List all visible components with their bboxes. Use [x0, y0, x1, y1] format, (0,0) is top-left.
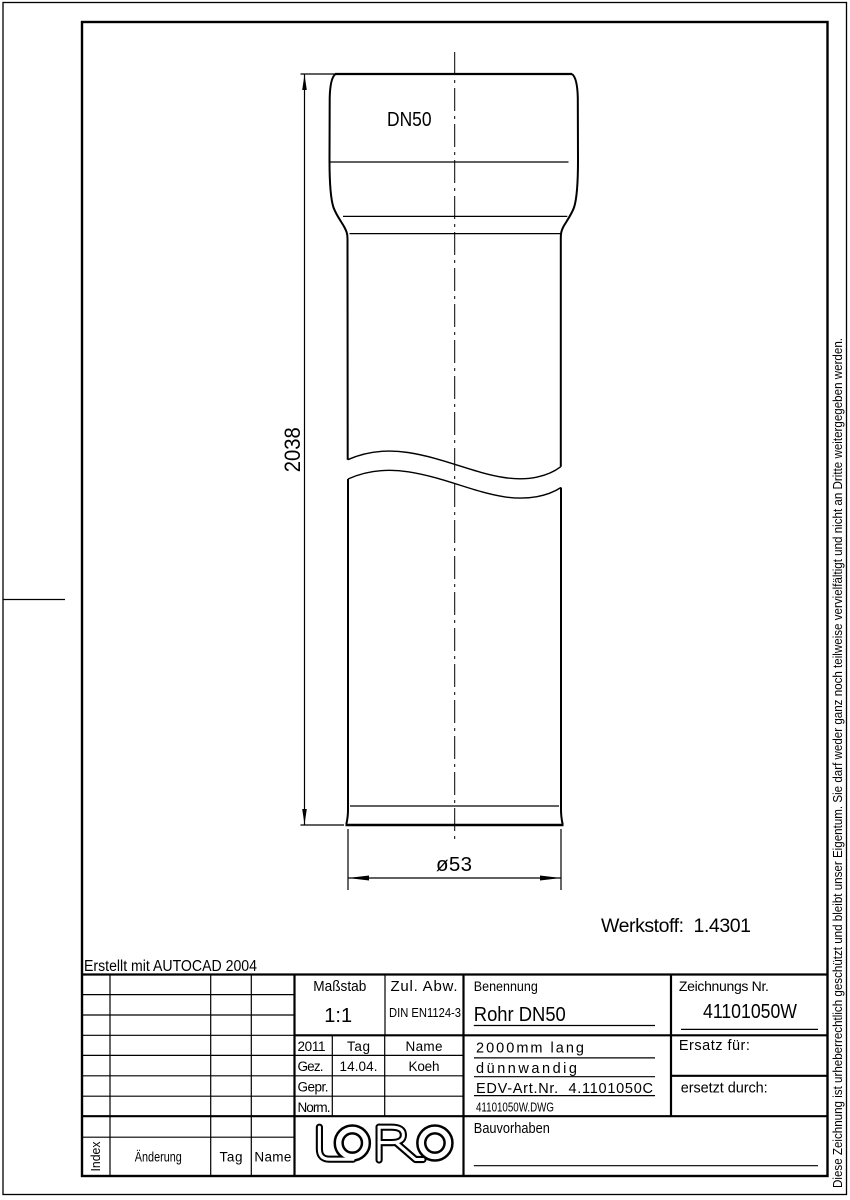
svg-text:Name: Name — [406, 1039, 443, 1054]
svg-text:Zeichnungs Nr.: Zeichnungs Nr. — [679, 978, 769, 994]
svg-text:Maßstab: Maßstab — [313, 978, 366, 995]
svg-text:ersetzt durch:: ersetzt durch: — [681, 1080, 768, 1096]
svg-text:2000mm lang: 2000mm lang — [476, 1041, 584, 1057]
svg-text:dünnwandig: dünnwandig — [476, 1061, 577, 1077]
svg-text:14.04.: 14.04. — [340, 1059, 378, 1074]
svg-text:EDV-Art.Nr. 4.1101050C: EDV-Art.Nr. 4.1101050C — [476, 1081, 653, 1097]
svg-text:Tag: Tag — [220, 1150, 243, 1165]
svg-text:Änderung: Änderung — [135, 1150, 182, 1165]
svg-text:Diese Zeichnung ist urheberrec: Diese Zeichnung ist urheberrechtlich ges… — [831, 338, 845, 1188]
svg-text:Ersatz für:: Ersatz für: — [679, 1038, 750, 1054]
svg-text:Koeh: Koeh — [409, 1059, 440, 1074]
svg-text:DN50: DN50 — [387, 108, 432, 131]
svg-text:Bauvorhaben: Bauvorhaben — [474, 1121, 550, 1137]
svg-text:Gez.: Gez. — [298, 1059, 324, 1074]
svg-text:Zul. Abw.: Zul. Abw. — [391, 978, 458, 995]
svg-text:Gepr.: Gepr. — [298, 1080, 329, 1095]
svg-text:DIN EN1124-3: DIN EN1124-3 — [389, 1006, 461, 1020]
svg-text:41101050W.DWG: 41101050W.DWG — [476, 1101, 554, 1115]
svg-text:2038: 2038 — [280, 427, 305, 472]
svg-text:Erstellt mit AUTOCAD 2004: Erstellt mit AUTOCAD 2004 — [84, 958, 257, 975]
svg-text:2011: 2011 — [298, 1039, 326, 1054]
svg-text:Werkstoff: 1.4301: Werkstoff: 1.4301 — [601, 915, 751, 937]
svg-text:ø53: ø53 — [436, 853, 472, 876]
svg-text:41101050W: 41101050W — [703, 1001, 797, 1023]
svg-text:Norm.: Norm. — [298, 1100, 331, 1115]
svg-text:Index: Index — [88, 1141, 103, 1171]
svg-text:Benennung: Benennung — [474, 978, 538, 994]
svg-text:Rohr DN50: Rohr DN50 — [474, 1004, 566, 1026]
svg-text:1:1: 1:1 — [324, 1005, 352, 1027]
svg-text:Tag: Tag — [347, 1039, 370, 1054]
svg-text:Name: Name — [254, 1150, 291, 1165]
